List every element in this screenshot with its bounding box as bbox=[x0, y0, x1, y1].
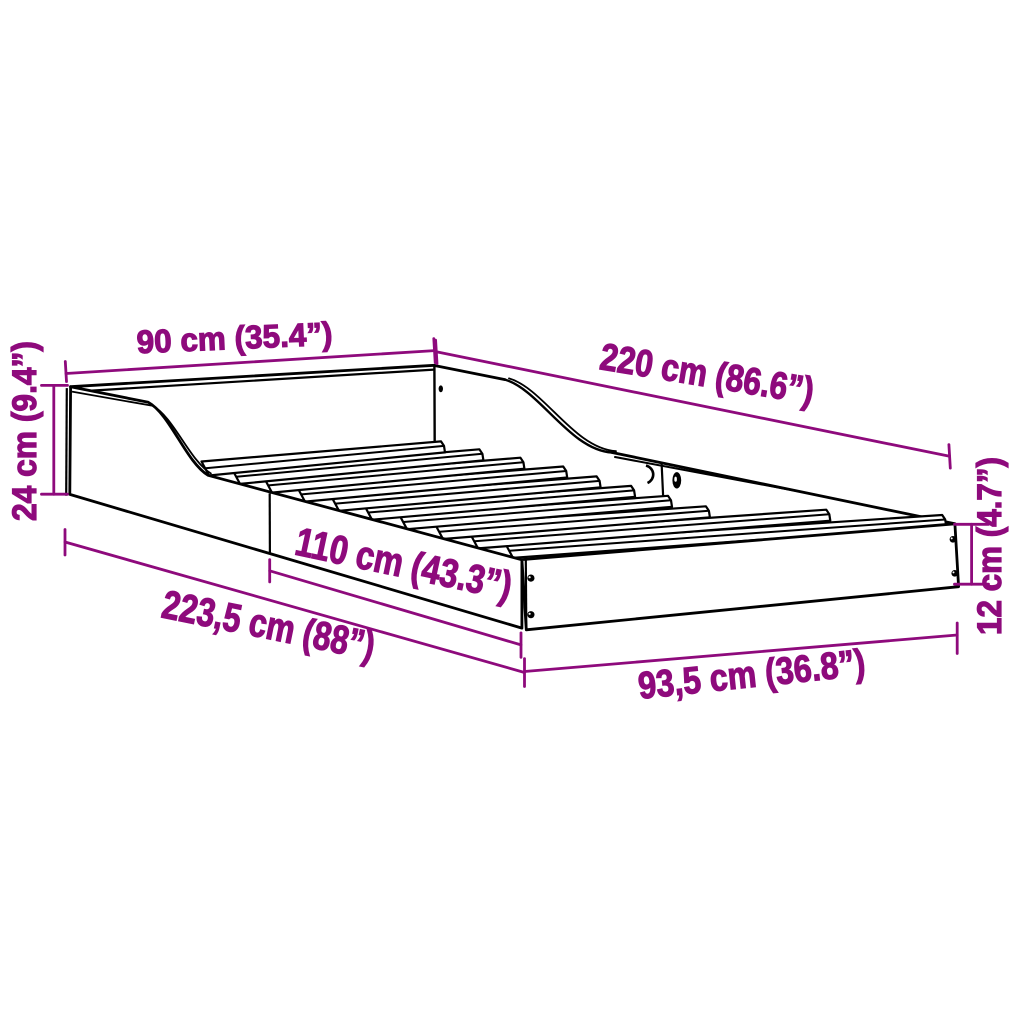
svg-text:24 cm (9.4”): 24 cm (9.4”) bbox=[6, 341, 44, 521]
svg-text:12 cm (4.7”): 12 cm (4.7”) bbox=[971, 457, 1009, 635]
